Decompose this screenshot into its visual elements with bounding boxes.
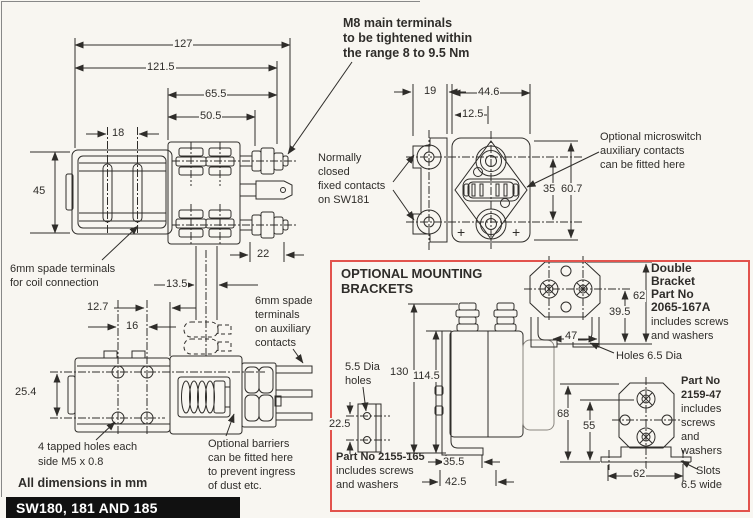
dimensions-note: All dimensions in mm	[18, 476, 147, 490]
note-55dia-line1: 5.5 Dia	[345, 360, 380, 374]
note-microswitch-line1: Optional microswitch	[600, 130, 701, 144]
plus-mark-right: +	[512, 224, 520, 240]
note-aux-spade-line2: terminals	[255, 308, 300, 322]
dim-block-length: 65.5	[204, 88, 227, 100]
dim-body-height: 60.7	[560, 183, 583, 195]
note-barriers-line3: to prevent ingress	[208, 465, 295, 479]
note-barriers-line1: Optional barriers	[208, 437, 289, 451]
double-bracket-sub2: and washers	[651, 329, 713, 343]
note-aux-spade-line1: 6mm spade	[255, 294, 312, 308]
note-barriers-line2: can be fitted here	[208, 451, 293, 465]
catalog-page: 127 121.5 65.5 50.5 18 45 22 13.5 19 44.…	[0, 0, 753, 518]
dim-single-bracket-inner: 55	[582, 420, 596, 432]
part-2155-label: Part No 2155-165	[336, 450, 425, 464]
dim-terminal-offset: 12.5	[461, 108, 484, 120]
dim-single-bracket-width: 62	[632, 468, 646, 480]
single-bracket-label2: 2159-47	[681, 388, 721, 402]
note-m8-line3: the range 8 to 9.5 Nm	[343, 46, 469, 61]
model-banner-title: SW180, 181 AND 185	[16, 500, 158, 516]
single-bracket-sub2: screws	[681, 416, 715, 430]
single-bracket-sub1: includes	[681, 402, 721, 416]
part-2155-sub1: includes screws	[336, 464, 414, 478]
note-coil-spade-line2: for coil connection	[10, 276, 99, 290]
note-coil-spade-line1: 6mm spade terminals	[10, 262, 115, 276]
double-bracket-label4: 2065-167A	[651, 301, 710, 315]
dim-bracket-overall-height: 130	[389, 366, 409, 378]
note-microswitch-line2: auxiliary contacts	[600, 144, 684, 158]
note-tapped-holes-line2: side M5 x 0.8	[38, 455, 103, 469]
plus-mark-left: +	[457, 224, 465, 240]
dim-plate-hole-pitch: 22.5	[328, 418, 351, 430]
note-barriers-line4: of dust etc.	[208, 479, 262, 493]
dim-body-width: 44.6	[477, 86, 500, 98]
note-nc-line1: Normally	[318, 151, 361, 165]
note-aux-spade-line4: contacts	[255, 336, 296, 350]
single-bracket-sub4: washers	[681, 444, 722, 458]
dim-aux-offset: 13.5	[165, 278, 188, 290]
brackets-title-line1: OPTIONAL MOUNTING	[341, 266, 482, 281]
note-slots-line2: 6.5 wide	[681, 478, 722, 492]
dim-bracket-body-height: 114.5	[412, 370, 441, 382]
dim-nut-width: 22	[256, 248, 270, 260]
dim-row-pitch: 25.4	[14, 386, 37, 398]
single-bracket-sub3: and	[681, 430, 699, 444]
note-nc-line3: fixed contacts	[318, 179, 385, 193]
part-2155-sub2: and washers	[336, 478, 398, 492]
note-microswitch-line3: can be fitted here	[600, 158, 685, 172]
dim-to-stud: 50.5	[199, 110, 222, 122]
note-nc-line4: on SW181	[318, 193, 369, 207]
note-aux-spade-line3: on auxiliary	[255, 322, 311, 336]
dim-single-bracket-height: 68	[556, 408, 570, 420]
dim-hole-pitch: 16	[125, 320, 139, 332]
dim-double-bracket-height: 62	[632, 290, 646, 302]
note-slots-line1: Slots	[696, 464, 720, 478]
dim-overall-length: 127	[173, 38, 193, 50]
brackets-title-line2: BRACKETS	[341, 281, 413, 296]
dim-foot-width: 42.5	[444, 476, 467, 488]
note-nc-line2: closed	[318, 165, 350, 179]
single-bracket-label1: Part No	[681, 374, 720, 388]
dim-rear-width: 19	[423, 85, 437, 97]
note-55dia-line2: holes	[345, 374, 371, 388]
dim-double-bracket-width: 47	[564, 330, 578, 342]
dim-foot-depth: 35.5	[442, 456, 465, 468]
dim-frame-height: 45	[32, 185, 46, 197]
dim-slot-pitch: 18	[111, 127, 125, 139]
dim-double-bracket-inner: 39.5	[608, 306, 631, 318]
double-bracket-sub1: includes screws	[651, 315, 729, 329]
dim-terminal-pitch: 35	[542, 183, 556, 195]
note-holes-65dia: Holes 6.5 Dia	[616, 349, 682, 363]
note-m8-line1: M8 main terminals	[343, 16, 452, 31]
note-tapped-holes-line1: 4 tapped holes each	[38, 440, 137, 454]
dim-hole-offset: 12.7	[86, 301, 109, 313]
dim-length-to-nut: 121.5	[146, 61, 176, 73]
model-banner: SW180, 181 AND 185	[6, 497, 240, 518]
note-m8-line2: to be tightened within	[343, 31, 472, 46]
